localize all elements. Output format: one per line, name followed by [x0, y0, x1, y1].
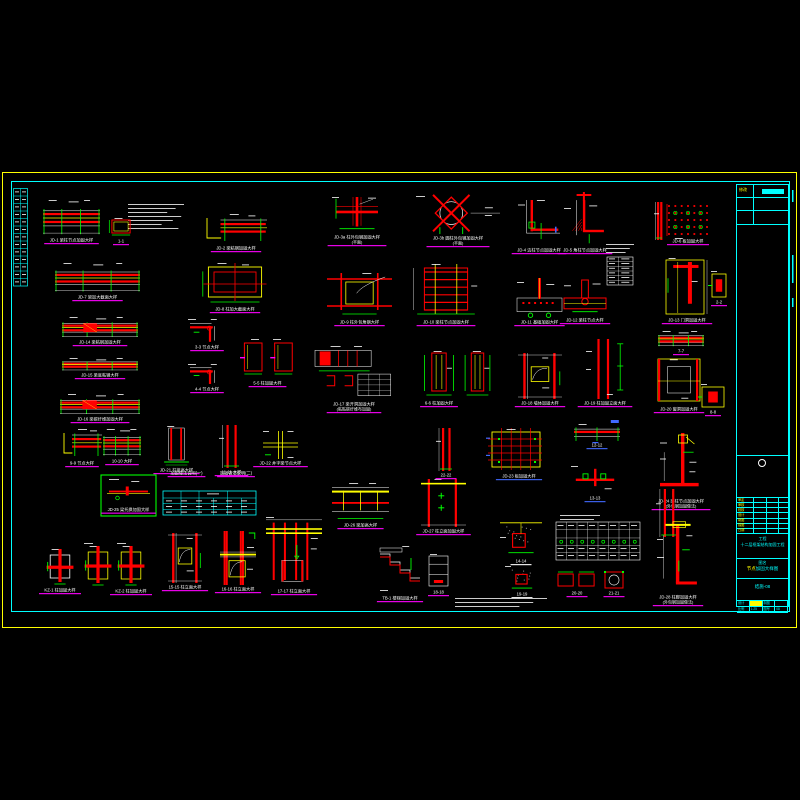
detail-caption: JD-2 梁粘钢加固大样 [216, 245, 255, 252]
detail-d36: 10-10 大样 [103, 429, 141, 465]
detail-caption: JD-6 板加固大样 [673, 238, 704, 245]
detail-d58: 16-16 柱立面大样 [215, 531, 261, 593]
detail-caption: 12-12 [592, 443, 603, 448]
detail-d52 [556, 522, 640, 560]
detail-caption: 5-5 柱加固大样 [253, 380, 281, 387]
detail-d12: JD-6 板加固大样 [667, 204, 709, 245]
detail-d55 [84, 543, 111, 585]
detail-caption: 14-14 [516, 559, 527, 564]
drawing-number: 结施-08 [737, 584, 788, 590]
field-label: 描图 [738, 524, 744, 527]
detail-caption: 22-22 [441, 473, 452, 478]
detail-d40: JD-23 板加固大样 [486, 428, 542, 480]
detail-d27: JD-17 梁开洞加固大样(粘贴碳纤维布加固) [315, 346, 391, 413]
project-block: 工程 十二层框架结构加固工程 [737, 534, 788, 559]
detail-d34: 8-8 [698, 384, 724, 416]
detail-d56: KZ-2 柱加固大样 [110, 543, 152, 595]
cad-sheet: JD-1 梁柱节点加固大样1-1JD-2 梁粘钢加固大样JD-3a 柱外包钢加固… [0, 0, 800, 800]
detail-d64: 21-21 [604, 571, 625, 597]
detail-d30: JD-18 墙体加固大样 [515, 353, 565, 407]
footer-cell: 图号 [763, 607, 776, 613]
signature-fields: 审定审核校核设计制图描图日期 [737, 498, 788, 534]
detail-d31: JD-19 柱加固立面大样 [578, 339, 633, 407]
detail-caption: 7-7 [678, 349, 685, 354]
detail-d48: JD-26 梁加高大样 [332, 483, 389, 529]
detail-caption: 20-20 [572, 591, 583, 596]
detail-caption: 19-19 [517, 592, 528, 597]
footer-cell: 1:25 [750, 607, 763, 613]
detail-d02 [128, 204, 184, 229]
detail-caption: JD-23 板加固大样 [502, 473, 535, 480]
detail-caption: 加固做法说明(一) [170, 470, 203, 477]
detail-d14: JD-8 柱加大截面大样 [203, 263, 267, 313]
field-label: 审核 [738, 504, 744, 507]
detail-caption: JD-9 柱外包角钢大样 [340, 319, 379, 326]
detail-d41: 12-12 [574, 420, 620, 449]
detail-d62: 19-19 [505, 566, 533, 598]
detail-d04: JD-2 梁粘钢加固大样 [207, 214, 267, 252]
detail-caption: 17-17 柱立面大样 [278, 588, 311, 595]
field-label: 制图 [738, 519, 744, 522]
detail-caption: 加固做法说明(二) [220, 470, 253, 477]
drawing-canvas: JD-1 梁柱节点加固大样1-1JD-2 梁粘钢加固大样JD-3a 柱外包钢加固… [0, 0, 800, 800]
detail-caption: JD-15 梁底粘钢大样 [81, 372, 118, 379]
detail-caption: 8-8 [710, 410, 717, 415]
detail-caption: JD-22 井字梁节点大样 [260, 460, 302, 467]
detail-d53 [656, 489, 677, 537]
detail-caption-sub: (平面) [352, 240, 363, 245]
detail-caption: JD-18 墙体加固大样 [521, 400, 558, 407]
detail-d08: JD-5 角柱节点加固大样 [558, 192, 613, 254]
field-label: 日期 [738, 529, 744, 532]
detail-d17: JD-11 基础加固大样 [514, 278, 564, 326]
detail-caption: 15-15 柱立面大样 [169, 584, 202, 591]
detail-caption: JD-26 梁加高大样 [344, 522, 377, 529]
detail-d63: 20-20 [558, 572, 594, 597]
detail-caption: JD-8 柱加大截面大样 [215, 306, 254, 313]
detail-d03: 1-1 [109, 218, 130, 245]
drawing-number-block: 结施-08 [737, 584, 788, 601]
title-block-footer: 设计 制图 比例 1:25 图号 08 [737, 601, 788, 613]
detail-d60: TB-1 楼梯加固大样 [377, 546, 423, 602]
detail-d54: KZ-1 柱加固大样 [39, 549, 81, 594]
detail-caption-sub: (平面) [453, 241, 464, 246]
detail-d61: 18-18 [428, 554, 449, 596]
detail-d25: 4-4 节点大样 [188, 364, 224, 393]
details-layer: JD-1 梁柱节点加固大样1-1JD-2 梁粘钢加固大样JD-3a 柱外包钢加固… [39, 192, 727, 607]
detail-caption: JD-10 梁柱节点加固大样 [423, 319, 469, 326]
detail-caption: KZ-2 柱加固大样 [115, 588, 146, 595]
field-label: 审定 [738, 499, 744, 502]
detail-d38: 11-11 大样 [215, 425, 249, 476]
detail-caption: JD-14 梁粘钢加固大样 [79, 339, 121, 346]
detail-caption: JD-27 柱立面加固大样 [423, 528, 465, 535]
detail-d22: JD-15 梁底粘钢大样 [62, 358, 138, 379]
detail-d21: JD-14 梁粘钢加固大样 [62, 317, 138, 346]
detail-caption-sub: (粘贴碳纤维布加固) [337, 406, 372, 412]
detail-caption: JD-19 柱加固立面大样 [584, 400, 626, 407]
detail-caption: 10-10 大样 [112, 458, 132, 465]
detail-d47 [163, 491, 256, 515]
detail-d43: JD-24 梁柱节点加固大样(外包钢加固做法) [652, 433, 711, 510]
title-block-seal [737, 456, 788, 498]
detail-d33: JD-20 窗洞加固大样 [654, 359, 704, 413]
footer-cell: 比例 [737, 607, 750, 613]
revision-table: 修改 [737, 185, 788, 225]
detail-caption: JD-7 梁加大截面大样 [78, 294, 117, 301]
title-block-blank [737, 225, 788, 456]
revision-label: 修改 [739, 188, 747, 192]
detail-d66 [455, 598, 547, 607]
detail-caption: 18-18 [433, 590, 444, 595]
detail-d67: 22-22 [436, 428, 457, 479]
detail-d42: 13-13 [571, 466, 614, 502]
detail-caption: JD-16 梁碳纤维加固大样 [77, 416, 123, 423]
detail-caption: 16-16 柱立面大样 [222, 586, 255, 593]
detail-d20: 2-2 [708, 271, 727, 306]
detail-d57: 15-15 柱立面大样 [162, 533, 208, 591]
detail-caption: 21-21 [609, 591, 620, 596]
footer-cell: 08 [775, 607, 788, 613]
seal-circle-icon [758, 459, 766, 467]
detail-d18: JD-12 梁柱节点大样 [560, 280, 610, 324]
detail-caption: 1-1 [118, 239, 125, 244]
detail-d44: JD-25 梁托换加固大样 [101, 475, 156, 516]
detail-d65: JD-28 柱脚加固大样(外包钢加固做法) [653, 522, 703, 606]
detail-d45: 加固做法说明(一) [168, 470, 206, 478]
detail-caption: 4-4 节点大样 [195, 386, 219, 393]
detail-caption: JD-13 门洞加固大样 [668, 317, 705, 324]
detail-caption: 6-6 柱加固大样 [425, 400, 453, 407]
drawing-list-table [14, 189, 28, 287]
detail-d29 [465, 351, 490, 395]
detail-d35: 9-9 节点大样 [64, 429, 102, 467]
detail-caption: JD-5 角柱节点加固大样 [563, 247, 607, 254]
project-name: 十二层框架结构加固工程 [737, 542, 788, 548]
detail-d07: JD-4 边柱节点加固大样 [512, 200, 567, 254]
detail-caption-sub: (外包钢加固做法) [666, 503, 697, 509]
detail-d32: 7-7 [658, 331, 704, 355]
detail-d50: 14-14 [500, 523, 542, 565]
detail-d39: JD-22 井字梁节点大样 [253, 431, 308, 467]
title-block: 修改 审定审核校核设计制图描图日期 工程 十二层框架结构加固工程 图名 节点加固… [736, 184, 789, 607]
detail-d16: JD-10 梁柱节点加固大样 [414, 264, 478, 326]
detail-d05: JD-3a 柱外包钢加固大样(平面) [328, 197, 387, 246]
detail-d49: JD-27 柱立面加固大样 [416, 479, 471, 535]
detail-caption: JD-25 梁托换加固大样 [108, 506, 150, 513]
detail-d11 [654, 202, 662, 240]
detail-caption: 2-2 [716, 300, 723, 305]
detail-caption: 3-3 节点大样 [195, 344, 219, 351]
detail-d06: JD-3b 圆柱外包钢加固大样(平面) [416, 195, 500, 247]
drawing-name-highlight: 节点 [747, 566, 756, 571]
detail-caption: 13-13 [590, 496, 601, 501]
detail-d59: 17-17 柱立面大样 [266, 517, 322, 595]
detail-d23: JD-16 梁碳纤维加固大样 [60, 394, 140, 423]
field-label: 校核 [738, 509, 744, 512]
detail-caption: JD-12 梁柱节点大样 [566, 317, 603, 324]
detail-d37: JD-21 柱接高大样 [153, 426, 199, 474]
detail-d10 [607, 257, 633, 285]
drawing-name-block: 图名 节点加固大样图 [737, 559, 788, 579]
detail-caption: KZ-1 柱加固大样 [44, 587, 75, 594]
detail-d13: JD-7 梁加大截面大样 [55, 263, 140, 301]
detail-caption: 9-9 节点大样 [70, 460, 94, 467]
revision-bar [762, 189, 784, 194]
detail-d51 [560, 515, 600, 520]
detail-caption: TB-1 楼梯加固大样 [382, 595, 417, 602]
field-label: 设计 [738, 514, 744, 517]
detail-caption: JD-1 梁柱节点加固大样 [50, 237, 94, 244]
detail-d28: 6-6 柱加固大样 [420, 351, 458, 407]
detail-d24: 3-3 节点大样 [188, 319, 224, 351]
detail-d09 [606, 244, 634, 253]
detail-caption: JD-20 窗洞加固大样 [660, 406, 697, 413]
detail-d19: JD-13 门洞加固大样 [662, 258, 712, 324]
detail-d15: JD-9 柱外包角钢大样 [327, 273, 392, 326]
detail-caption: JD-11 基础加固大样 [521, 319, 558, 326]
drawing-name-rest: 加固大样图 [756, 566, 779, 571]
detail-d26: 5-5 柱加固大样 [240, 339, 292, 387]
detail-d01: JD-1 梁柱节点加固大样 [43, 200, 100, 244]
detail-caption-sub: (外包钢加固做法) [663, 599, 694, 605]
detail-caption: JD-4 边柱节点加固大样 [517, 247, 561, 254]
